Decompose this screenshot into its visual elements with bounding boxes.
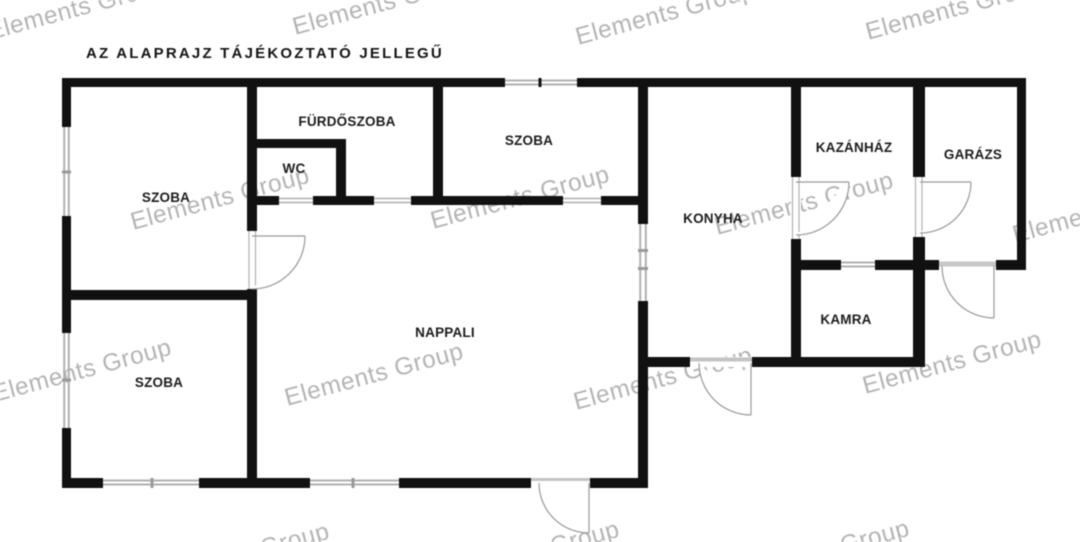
svg-text:KAMRA: KAMRA (820, 312, 871, 327)
svg-text:FÜRDŐSZOBA: FÜRDŐSZOBA (298, 114, 395, 129)
svg-text:NAPPALI: NAPPALI (415, 325, 475, 340)
svg-text:KONYHA: KONYHA (683, 211, 743, 226)
svg-text:KAZÁNHÁZ: KAZÁNHÁZ (816, 140, 893, 155)
svg-text:WC: WC (283, 161, 306, 176)
svg-text:SZOBA: SZOBA (142, 190, 190, 205)
svg-text:SZOBA: SZOBA (505, 133, 553, 148)
svg-text:SZOBA: SZOBA (135, 375, 183, 390)
svg-text:GARÁZS: GARÁZS (944, 147, 1002, 162)
svg-text:AZ ALAPRAJZ TÁJÉKOZTATÓ JELLEG: AZ ALAPRAJZ TÁJÉKOZTATÓ JELLEGŰ (86, 44, 444, 62)
